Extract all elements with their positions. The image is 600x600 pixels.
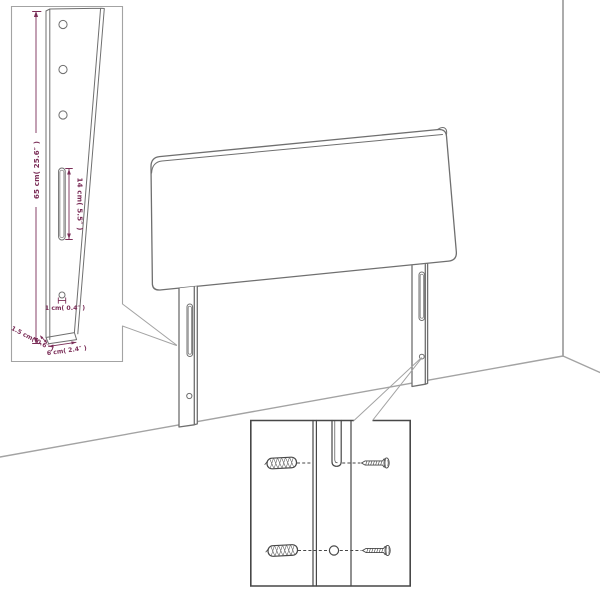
headboard-face [151,129,456,290]
diagram-canvas: 65 cm( 25.6″ ) 14 cm( 5.5″ ) 1 cm( 0.4″ … [0,0,600,600]
hardware-inset [251,358,422,586]
headboard-panel [151,127,456,290]
dimension-hole-label: 1 cm( 0.4″ ) [45,305,85,312]
dimension-inset-leader-lines [123,304,177,346]
floor-line-right [563,356,600,373]
dimension-height-label: 65 cm( 25.6″ ) [32,141,41,199]
dimension-slot-label: 14 cm( 5.5″ ) [76,177,85,230]
right-leg [412,264,428,387]
left-leg [179,286,197,427]
hardware-inset-leader-lines [354,358,422,421]
hardware-inset-box [251,421,410,587]
product-diagram: 65 cm( 25.6″ ) 14 cm( 5.5″ ) 1 cm( 0.4″ … [0,0,600,600]
